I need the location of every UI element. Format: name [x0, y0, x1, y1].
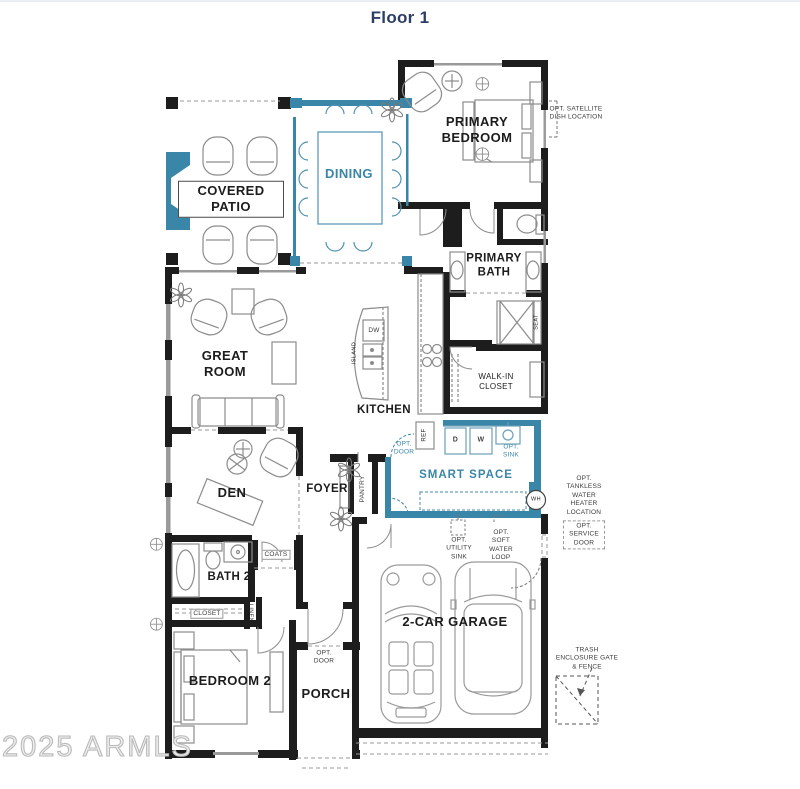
fixture-label-washer: W — [477, 437, 484, 446]
annotation-opt-sink: OPT. SINK — [498, 444, 524, 461]
plant-great-room — [169, 283, 192, 307]
room-label-smart-space: SMART SPACE — [419, 468, 513, 482]
floor-plan-drawing — [0, 2, 800, 789]
fixture-label-fridge: REF — [421, 428, 429, 441]
fixture-label-island: ISLAND — [352, 342, 359, 364]
room-label-den: DEN — [218, 485, 247, 501]
fixture-label-seat: SEAT — [534, 314, 541, 330]
annotation-utility-sink: OPT. UTILITY SINK — [441, 536, 477, 561]
room-label-dining: DINING — [325, 166, 373, 182]
room-label-primary-bath: PRIMARY BATH — [454, 252, 534, 281]
room-label-bedroom-2: BEDROOM 2 — [189, 673, 271, 689]
annotation-soft-water: OPT. SOFT WATER LOOP — [484, 529, 518, 563]
floor-plan-page: Floor 1 COVERED PATIO DINING PRIMARY BED… — [0, 0, 800, 789]
room-label-great-room: GREAT ROOM — [185, 348, 265, 381]
fixture-label-dishwasher: DW — [368, 327, 379, 335]
room-label-primary-bedroom: PRIMARY BEDROOM — [421, 114, 533, 147]
fixture-label-water-heater: WH — [531, 497, 541, 504]
room-label-walk-in-closet: WALK-IN CLOSET — [470, 372, 522, 392]
garage-cars — [381, 562, 535, 723]
room-label-bath-2: BATH 2 — [207, 570, 250, 584]
room-label-porch: PORCH — [302, 686, 351, 702]
annotation-satellite: OPT. SATELLITE DISH LOCATION — [549, 106, 603, 123]
annotation-tankless: OPT. TANKLESS WATER HEATER LOCATION — [559, 475, 609, 517]
annotation-opt-door-kitchen: OPT. DOOR — [389, 441, 419, 458]
page-title: Floor 1 — [0, 8, 800, 28]
fixture-label-dryer: D — [453, 437, 458, 446]
room-label-foyer: FOYER — [306, 482, 348, 496]
room-label-kitchen: KITCHEN — [357, 403, 411, 417]
room-label-garage: 2-CAR GARAGE — [402, 614, 507, 630]
fixture-label-pantry: PANTRY — [359, 476, 367, 503]
annotation-service-door: OPT. SERVICE DOOR — [563, 520, 605, 549]
room-label-covered-patio: COVERED PATIO — [178, 181, 284, 218]
annotation-trash-enclosure: TRASH ENCLOSURE GATE & FENCE — [554, 646, 620, 671]
fixture-label-linen: LINEN — [247, 604, 254, 622]
fixture-label-closet: CLOSET — [190, 609, 223, 619]
smart-space-fixtures — [420, 422, 526, 510]
watermark: 2025 ARMLS — [2, 731, 193, 764]
annotation-opt-door-porch: OPT. DOOR — [309, 650, 339, 667]
fixture-label-coats: COATS — [262, 550, 291, 560]
